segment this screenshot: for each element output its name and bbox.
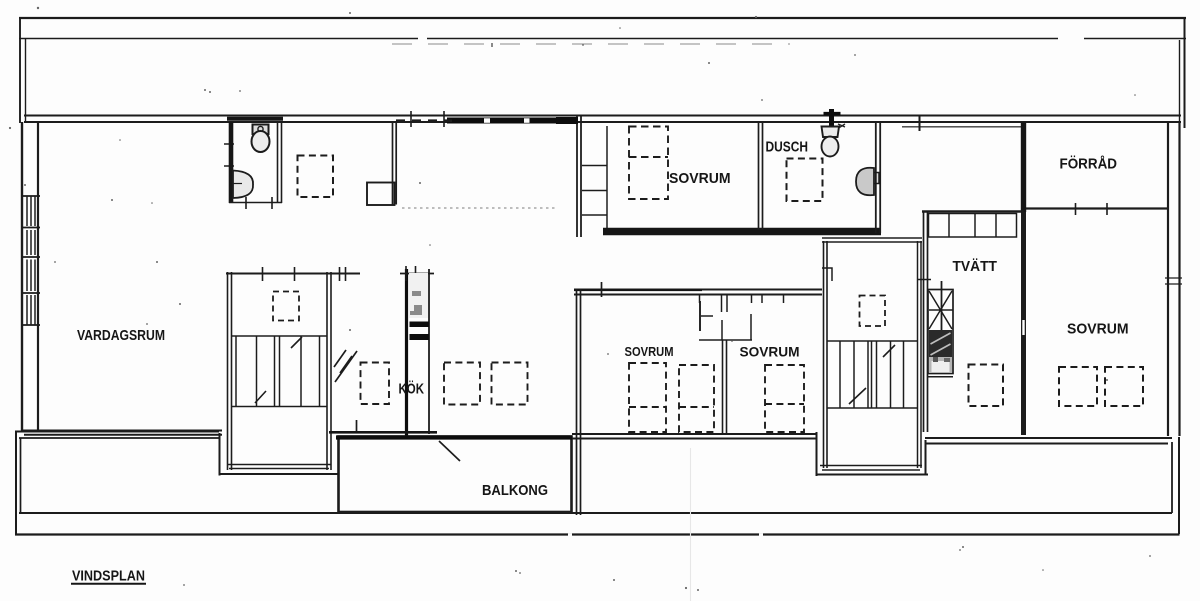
svg-text:SOVRUM: SOVRUM: [1067, 321, 1129, 338]
svg-text:VARDAGSRUM: VARDAGSRUM: [77, 327, 165, 344]
svg-text:FÖRRÅD: FÖRRÅD: [1060, 156, 1118, 173]
svg-text:BALKONG: BALKONG: [482, 482, 548, 499]
svg-text:DUSCH: DUSCH: [766, 139, 809, 156]
svg-text:SOVRUM: SOVRUM: [669, 170, 731, 187]
svg-text:SOVRUM: SOVRUM: [625, 344, 674, 359]
svg-text:SOVRUM: SOVRUM: [740, 344, 800, 360]
svg-text:KÖK: KÖK: [399, 381, 425, 398]
svg-text:TVÄTT: TVÄTT: [953, 258, 998, 275]
svg-text:VINDSPLAN: VINDSPLAN: [72, 568, 145, 585]
